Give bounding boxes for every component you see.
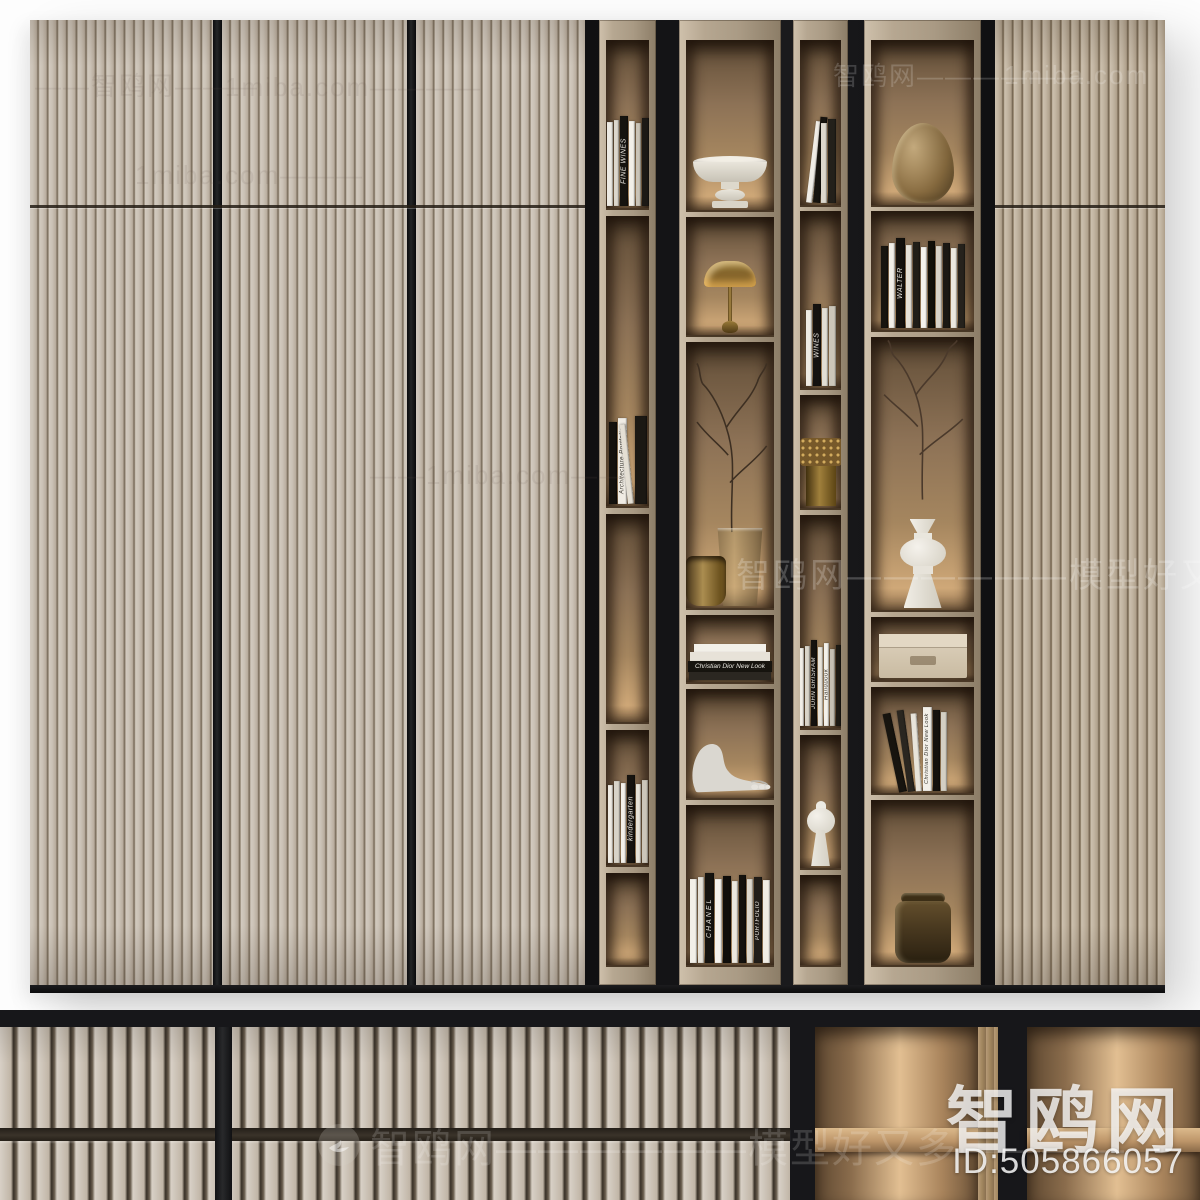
book-spine	[921, 247, 927, 328]
shelf-column-c: WINES JOHN GRISHAM Handbook	[793, 20, 848, 985]
book-spine	[732, 881, 738, 963]
book-spine	[836, 645, 841, 726]
book-spine-label: JOHN GRISHAM	[811, 640, 817, 726]
shelf-niche	[686, 217, 774, 337]
book-spine	[607, 122, 613, 206]
book-group: kindergarten	[606, 775, 649, 863]
panel-groove-closeup	[0, 1128, 790, 1141]
shelf-niche	[800, 395, 841, 510]
book-group: Architecture Portfolio	[606, 416, 649, 504]
book-spine-label: WALTER	[896, 238, 905, 328]
shelf-niche	[871, 337, 974, 612]
cabinet-plinth	[30, 985, 1165, 993]
book-spine	[889, 243, 895, 328]
book-spine	[933, 710, 940, 791]
book-spine	[906, 245, 912, 328]
shelf-niche: CHANEL PORTFOLIO	[686, 805, 774, 967]
shelf-niche	[800, 40, 841, 207]
book-spine	[941, 712, 947, 791]
door-groove-left	[30, 205, 585, 208]
book-spine	[621, 783, 626, 863]
shelf-niche	[871, 617, 974, 682]
book-spine	[913, 242, 920, 328]
shelf-niche	[871, 40, 974, 207]
shelf-niche: WINES	[800, 211, 841, 390]
book-spine: WINES	[813, 304, 821, 386]
book-spine	[881, 246, 888, 328]
storage-box-body	[879, 634, 967, 678]
shelf-niche	[686, 40, 774, 212]
slat-panel-closeup	[0, 1027, 790, 1200]
door-gap-2	[407, 20, 416, 985]
storage-box-slot	[910, 656, 936, 665]
book-group: WALTER	[871, 238, 974, 328]
book-spine	[800, 648, 804, 726]
pedestal-bowl	[686, 156, 774, 208]
book-group: CHANEL PORTFOLIO	[686, 873, 774, 963]
book-spine	[636, 123, 641, 206]
shelf-niche: Christian Dior New Look	[686, 615, 774, 684]
storage-box	[871, 634, 974, 678]
slat-door-1	[30, 20, 213, 985]
book-spine: CHANEL	[705, 873, 714, 963]
book-spine	[636, 784, 641, 863]
shelf-niche	[800, 875, 841, 967]
book-spine: PORTFOLIO	[754, 877, 762, 963]
book-spine	[715, 879, 722, 963]
book-spine	[747, 879, 753, 963]
book-spine	[763, 880, 770, 963]
jar-body	[895, 901, 951, 963]
shelf-niche: WALTER	[871, 211, 974, 332]
shelf-niche	[800, 735, 841, 870]
book-spine	[943, 243, 950, 328]
shelf-niche	[686, 342, 774, 610]
shelf-niche: JOHN GRISHAM Handbook	[800, 515, 841, 730]
gold-vessel-studded-top	[800, 438, 841, 466]
book-spine	[642, 780, 648, 863]
book-spine: Christian Dior New Look	[923, 707, 932, 791]
vase-flare	[910, 519, 936, 533]
stacked-book	[690, 652, 770, 661]
book-group: FINE WINES	[606, 116, 649, 206]
shelf-niche	[871, 800, 974, 967]
book-spine	[828, 119, 836, 203]
object-base	[808, 830, 834, 866]
book-group: WINES	[800, 304, 841, 386]
shelf-board-closeup	[1027, 1128, 1200, 1152]
book-spine	[614, 120, 619, 206]
book-spine-label: WINES	[813, 304, 821, 386]
book-spine	[723, 876, 731, 963]
book-spine: kindergarten	[627, 775, 635, 863]
dried-branches	[686, 350, 774, 540]
book-spine-label: Handbook	[824, 643, 829, 726]
shelf-column-b: Christian Dior New Look CHANEL	[679, 20, 781, 985]
brass-vessel	[686, 556, 726, 606]
book-spine	[629, 121, 635, 206]
vase-pair	[686, 528, 774, 606]
bowl-bulge	[715, 189, 745, 201]
bowl-foot	[721, 182, 739, 189]
book-group: JOHN GRISHAM Handbook	[800, 640, 841, 726]
shelf-board-closeup	[815, 1128, 978, 1152]
book-spine	[958, 244, 965, 328]
book-group	[800, 117, 841, 203]
book-spine	[822, 308, 828, 386]
stacked-book-label: Christian Dior New Look	[695, 663, 765, 670]
book-spine-label: Christian Dior New Look	[923, 707, 932, 791]
book-spine	[821, 123, 827, 203]
book-spine	[936, 246, 942, 328]
gold-vessel-cylinder	[806, 466, 836, 506]
book-spine	[635, 416, 647, 504]
gold-vessel	[800, 438, 841, 506]
amber-glass-jar	[871, 893, 974, 963]
book-spine-label: CHANEL	[705, 873, 714, 963]
stacked-book: Christian Dior New Look	[688, 661, 772, 672]
shelf-niche-closeup	[1027, 1027, 1200, 1200]
book-spine	[951, 248, 957, 328]
book-spine	[928, 241, 935, 328]
book-group: Christian Dior New Look	[871, 707, 974, 791]
smoked-glass-vase	[871, 123, 974, 203]
book-spine	[806, 310, 812, 386]
shelf-niche-closeup	[815, 1027, 978, 1200]
shelf-column-a: FINE WINES Architecture Portfolio	[599, 20, 656, 985]
book-spine-label: PORTFOLIO	[754, 877, 762, 963]
book-spine	[614, 781, 620, 863]
shelf-niche: kindergarten	[606, 730, 649, 867]
shelf-niche: Architecture Portfolio	[606, 216, 649, 508]
mushroom-lamp	[686, 261, 774, 333]
storage-box-lid	[879, 634, 967, 648]
shelf-niche	[606, 514, 649, 724]
book-spine	[690, 879, 697, 963]
lamp-stem	[728, 287, 732, 321]
turned-wood-object	[800, 801, 841, 866]
bowl-base	[712, 201, 748, 208]
stacked-book	[694, 644, 766, 652]
door-gap-1	[213, 20, 222, 985]
book-spine: JOHN GRISHAM	[811, 640, 817, 726]
branch-illustration	[871, 337, 974, 505]
lamp-dome	[704, 261, 756, 287]
book-spine	[739, 875, 746, 963]
slat-door-3	[416, 20, 585, 985]
foot-sculpture	[686, 734, 774, 796]
book-spine: FINE WINES	[620, 116, 628, 206]
slat-door-right	[995, 20, 1165, 985]
foot-illustration	[686, 734, 774, 796]
book-spine-label: kindergarten	[627, 775, 635, 863]
shelf-niche	[606, 873, 649, 967]
product-image: FINE WINES Architecture Portfolio	[0, 0, 1200, 1200]
shelf-niche: FINE WINES	[606, 40, 649, 210]
dried-branches	[871, 337, 974, 505]
book-spine	[608, 785, 613, 863]
book-spine	[642, 118, 649, 206]
door-groove-right	[995, 205, 1165, 208]
panel-gap-closeup	[215, 1027, 232, 1200]
slat-door-2	[222, 20, 407, 985]
bowl-body	[693, 162, 767, 182]
shelf-frame-closeup	[978, 1027, 998, 1200]
white-sculptural-vase	[871, 519, 974, 608]
book-stack: Christian Dior New Look	[686, 644, 774, 680]
stacked-book	[689, 672, 771, 680]
vase-waist	[913, 566, 933, 574]
book-spine: Handbook	[824, 643, 829, 726]
book-spine	[829, 306, 836, 386]
branch-illustration	[686, 350, 774, 540]
smoked-glass-body	[892, 123, 954, 203]
book-spine	[698, 877, 704, 963]
wardrobe-cabinet: FINE WINES Architecture Portfolio	[30, 20, 1165, 993]
shelf-niche: Christian Dior New Look	[871, 687, 974, 795]
shelf-niche	[686, 689, 774, 800]
book-spine: WALTER	[896, 238, 905, 328]
vase-skirt	[904, 574, 942, 608]
book-spine	[609, 422, 617, 504]
vase-bulb	[900, 538, 946, 568]
detail-strip	[0, 1010, 1200, 1200]
book-spine-label: FINE WINES	[620, 116, 628, 206]
book-spine	[818, 647, 822, 726]
book-spine	[805, 646, 809, 726]
book-spine	[830, 649, 834, 726]
shelf-column-d: WALTER	[864, 20, 981, 985]
lamp-base	[722, 321, 738, 333]
